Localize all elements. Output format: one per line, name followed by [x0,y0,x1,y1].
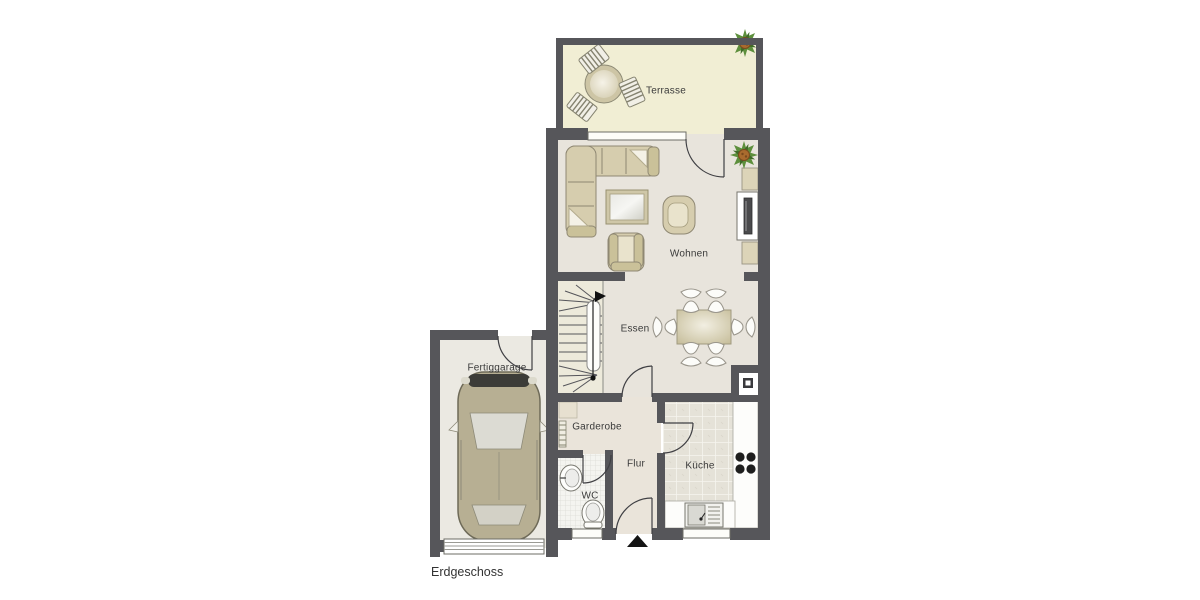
floor-title: Erdgeschoss [431,565,503,579]
wall-garage-top-left [430,330,498,340]
armchair-icon [608,233,644,271]
kitchen-counter-right [733,400,758,528]
wall-terrace-right [756,38,763,134]
wc-sink-icon [560,465,582,491]
wall-kitchen-left-upper [657,402,665,423]
wall-wc-top [546,450,583,458]
wall-wohnen-essen-left [546,272,625,281]
room-label-kueche: Küche [685,461,714,472]
terrace-window [588,132,686,140]
car-icon [449,372,549,540]
room-label-flur: Flur [627,459,645,470]
dining-table-icon [677,310,731,344]
floor-plan-drawing [0,0,1200,600]
coffee-table-icon [606,190,648,224]
wc-window [572,529,602,538]
wall-wc-right [605,450,613,528]
wall-bottom-2 [602,528,616,540]
kitchen-tiles [663,399,733,501]
wall-bottom-4 [730,528,770,540]
room-label-terrasse: Terrasse [646,86,686,97]
chimney-flue-icon [739,373,758,395]
room-label-wc: WC [581,491,598,502]
chimney-wall-left [731,365,739,395]
wall-wohnen-essen-right [744,272,758,281]
wall-hall-top [546,393,622,402]
wall-terrace-top [556,38,763,45]
armchair-icon [663,196,695,234]
room-label-wohnen: Wohnen [670,249,708,260]
toilet-icon [582,500,604,528]
wall-kitchen-left-lower [657,453,665,528]
garage-door-icon [444,539,544,554]
coat-rack-icon [559,421,566,447]
wall-bottom-3 [652,528,683,540]
room-label-fertiggarage: Fertiggarage [467,363,526,374]
wall-garage-top-right [532,330,558,340]
room-label-essen: Essen [621,324,650,335]
wall-garage-bottom-left [430,540,444,552]
wall-house-top-right [724,128,758,140]
wall-bottom-1 [558,528,572,540]
wall-garage-left [430,330,440,557]
wall-terrace-left [556,38,563,134]
wall-house-top-left [546,128,588,140]
wall-house-left [546,128,558,557]
kitchen-sink-icon [685,503,723,527]
wall-house-right [758,128,770,540]
floor-plan-page: Terrasse Wohnen Essen Fertiggarage Garde… [0,0,1200,600]
wardrobe-icon [559,402,577,418]
entrance-arrow-icon [627,535,648,547]
room-label-garderobe: Garderobe [572,422,622,433]
kitchen-window [683,529,730,538]
